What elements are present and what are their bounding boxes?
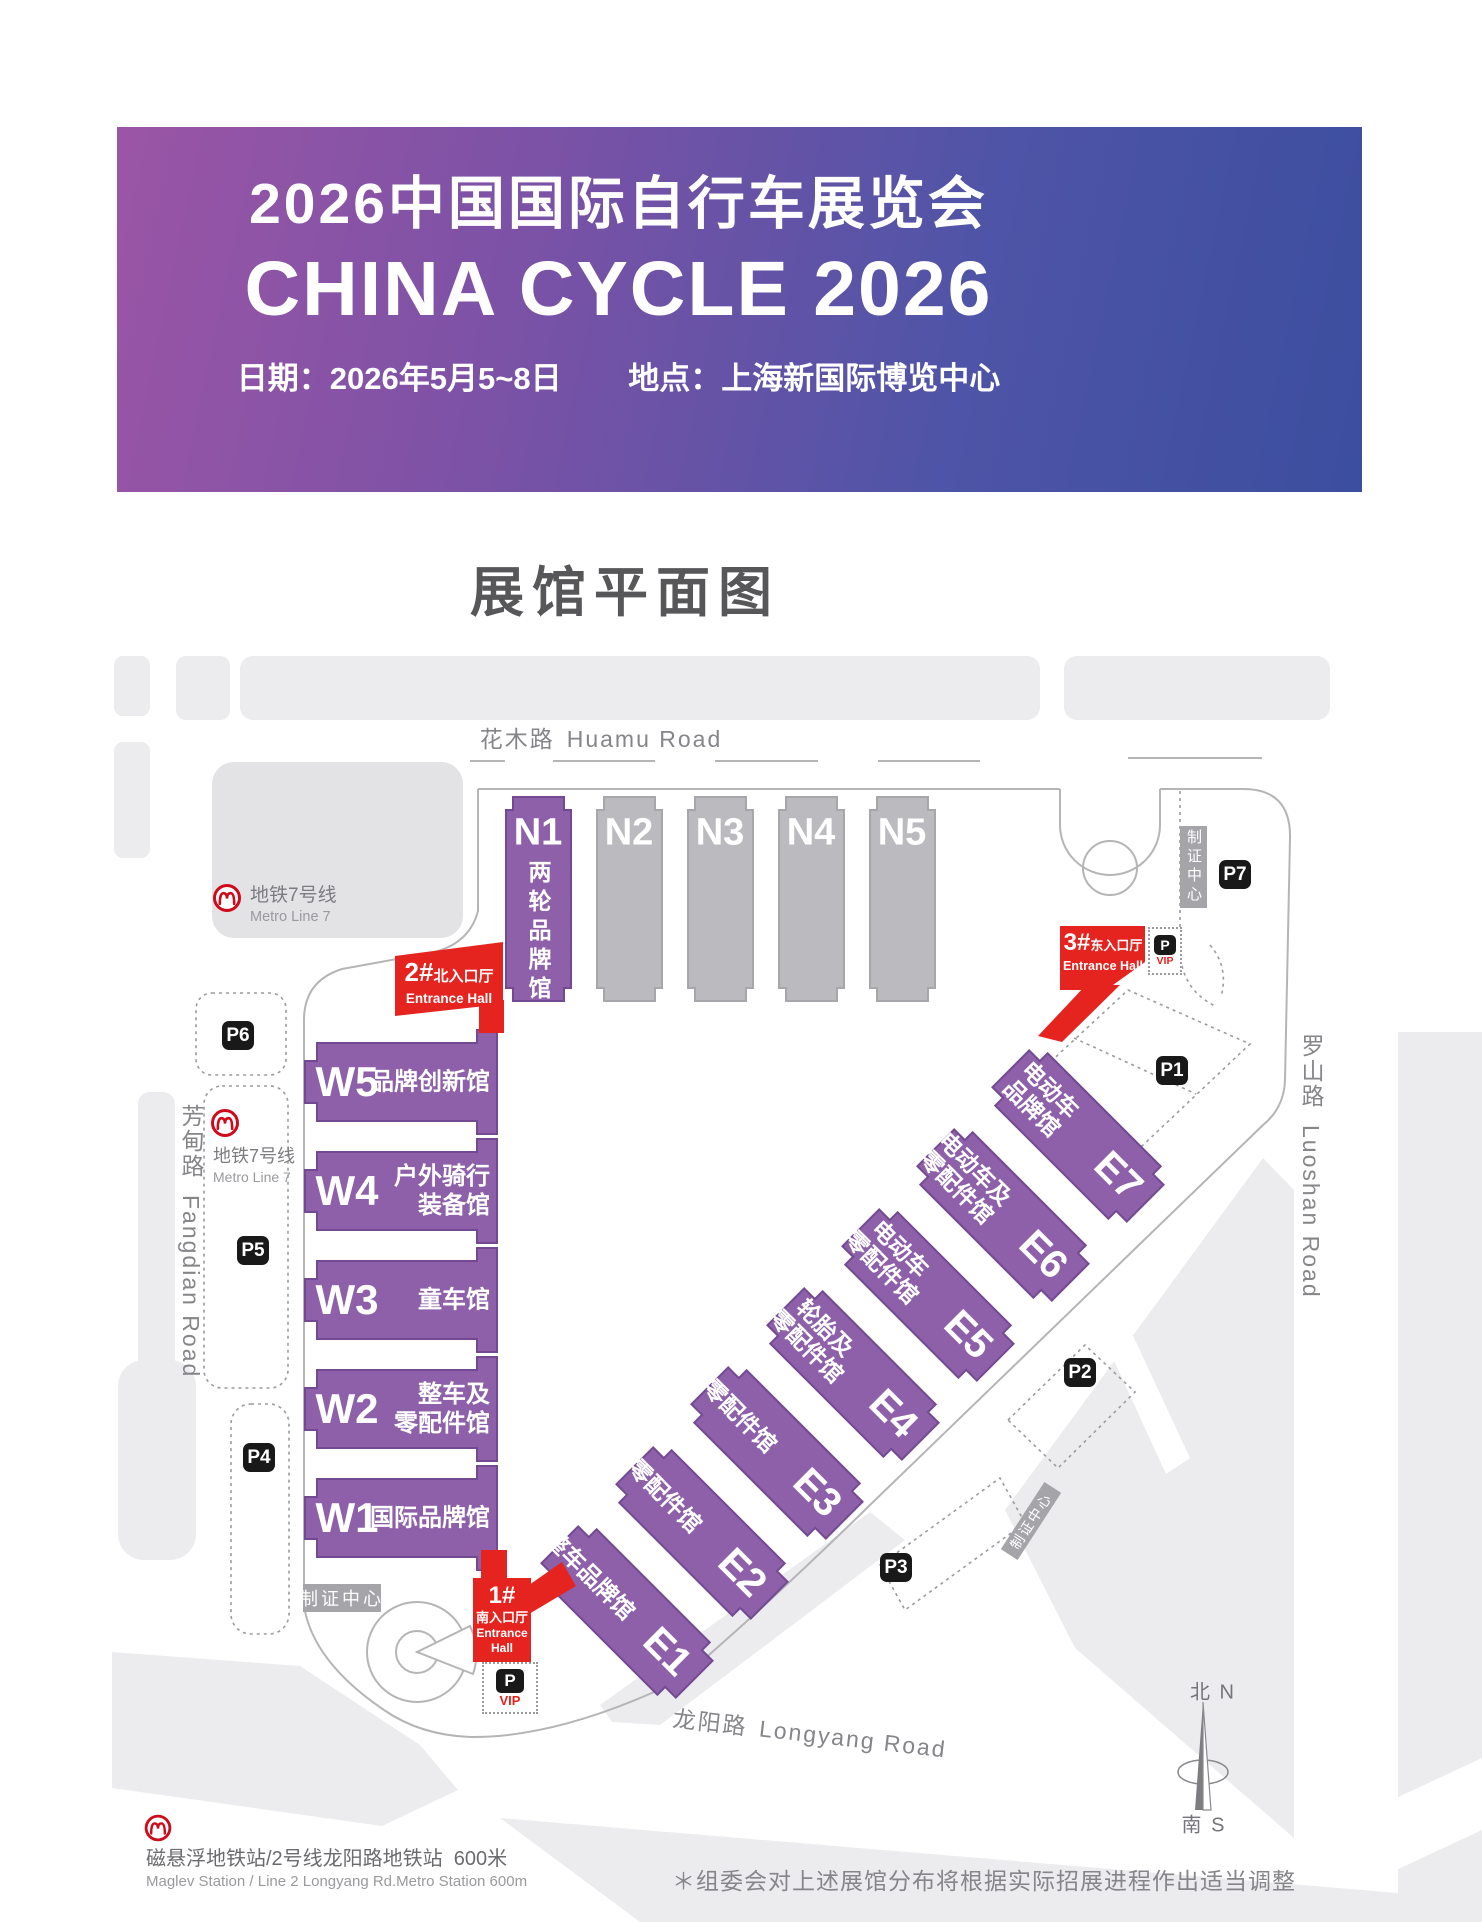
parking-p2-badge: P2 [1064, 1358, 1096, 1387]
fangdian-road-label: 芳甸路Fangdian Road [174, 1104, 208, 1364]
parking-icon: P [496, 1669, 524, 1693]
credential-center-label-east: 制证中心 [1180, 826, 1207, 908]
hall-n1-label: N1 [514, 812, 563, 855]
parking-p3-badge: P3 [880, 1553, 912, 1582]
hall-w2-name: 整车及零配件馆 [334, 1380, 490, 1438]
parking-icon: P [1154, 935, 1176, 955]
entrance-1-label: 1# 南入口厅 Entrance Hall [473, 1583, 531, 1656]
hall-n5-label: N5 [878, 812, 927, 855]
hall-n4-label: N4 [787, 812, 836, 855]
poster-root: 2026中国国际自行车展览会 CHINA CYCLE 2026 日期：2026年… [0, 0, 1482, 1922]
parking-p4-badge: P4 [243, 1443, 275, 1472]
hall-w5-name: 品牌创新馆 [334, 1068, 490, 1097]
event-date: 日期：2026年5月5~8日 [237, 359, 562, 399]
hall-n3-label: N3 [696, 812, 745, 855]
metro-icon [215, 886, 240, 911]
compass-south-label: 南 S [1182, 1809, 1227, 1838]
hall-n1-name: 两轮品牌馆 [521, 860, 555, 1000]
event-venue: 地点：上海新国际博览中心 [628, 359, 1000, 399]
hall-w3-name: 童车馆 [334, 1286, 490, 1315]
credential-center-label-south: 制证中心 [303, 1584, 381, 1612]
event-meta: 日期：2026年5月5~8日 地点：上海新国际博览中心 [117, 359, 1120, 399]
luoshan-road-label: 罗山路Luoshan Road [1294, 1034, 1328, 1294]
hall-w4-name: 户外骑行装备馆 [334, 1162, 490, 1220]
page-title: 展馆平面图 [0, 548, 1250, 627]
vip-parking-south: P VIP [482, 1662, 538, 1714]
compass-north-label: 北 N [1190, 1676, 1236, 1705]
parking-p7-badge: P7 [1219, 860, 1251, 889]
hall-w1-name: 国际品牌馆 [334, 1504, 490, 1533]
event-banner: 2026中国国际自行车展览会 CHINA CYCLE 2026 日期：2026年… [117, 127, 1362, 492]
metro-icon [213, 1111, 238, 1136]
parking-p1-badge: P1 [1156, 1056, 1188, 1085]
metro-icon [146, 1816, 170, 1840]
parking-p5-badge: P5 [237, 1236, 269, 1265]
huamu-road-label: 花木路Huamu Road [480, 720, 723, 754]
parking-p6-badge: P6 [222, 1021, 254, 1050]
entrance-2-label: 2#北入口厅 Entrance Hall [397, 958, 501, 1007]
event-title-cn: 2026中国国际自行车展览会 [117, 167, 1120, 241]
maglev-station-label: 磁悬浮地铁站/2号线龙阳路地铁站 600米 Maglev Station / L… [146, 1846, 527, 1892]
disclaimer-note: ＊组委会对上述展馆分布将根据实际招展进程作出适当调整 [672, 1862, 1272, 1896]
entrance-3-label: 3#东入口厅 Entrance Hall [1060, 930, 1146, 974]
metro-line7-label-north: 地铁7号线 Metro Line 7 [250, 884, 337, 927]
vip-parking-east: P VIP [1148, 927, 1182, 975]
hall-n2-label: N2 [605, 812, 654, 855]
metro-line7-label-west: 地铁7号线 Metro Line 7 [213, 1144, 295, 1187]
event-title-en: CHINA CYCLE 2026 [117, 241, 1120, 337]
